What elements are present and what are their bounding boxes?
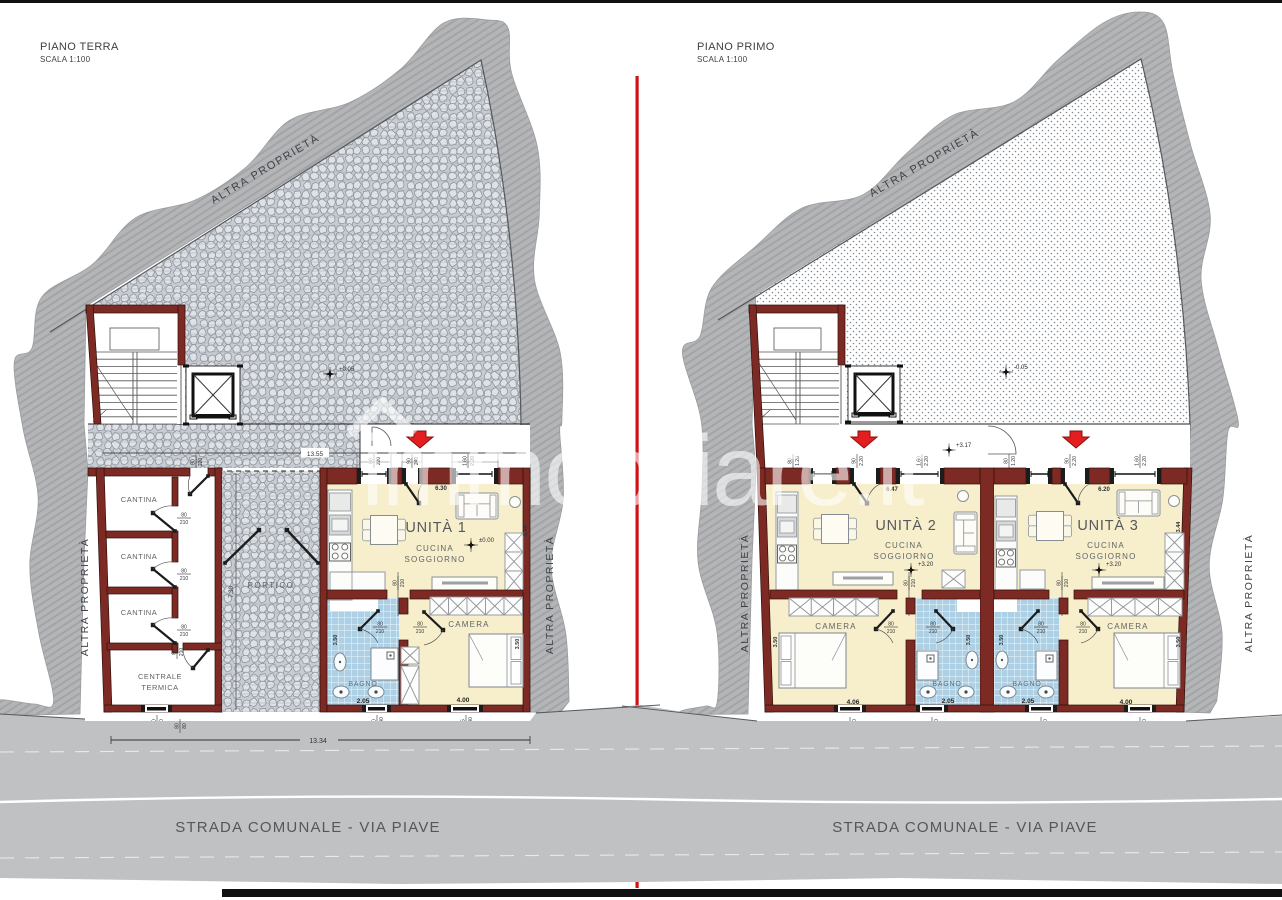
svg-text:210: 210 (180, 576, 189, 582)
svg-text:CUCINA: CUCINA (1087, 541, 1125, 550)
svg-text:CAMERA: CAMERA (815, 622, 856, 631)
svg-text:210: 210 (1037, 629, 1046, 635)
svg-text:80: 80 (1004, 458, 1010, 464)
svg-text:SCALA 1:100: SCALA 1:100 (697, 55, 748, 64)
svg-text:210: 210 (400, 579, 406, 588)
svg-text:CANTINA: CANTINA (121, 608, 157, 617)
svg-text:1.60: 1.60 (1135, 456, 1141, 466)
svg-text:2.20: 2.20 (924, 456, 930, 466)
svg-text:210: 210 (929, 629, 938, 635)
svg-text:PORTICO: PORTICO (248, 581, 295, 590)
svg-text:UNITÀ 3: UNITÀ 3 (1077, 517, 1138, 534)
svg-text:immobiliare.it: immobiliare.it (361, 415, 924, 527)
svg-text:3.50: 3.50 (333, 635, 339, 646)
svg-text:STRADA COMUNALE - VIA PIAVE: STRADA COMUNALE - VIA PIAVE (832, 819, 1098, 836)
svg-text:TERMICA: TERMICA (141, 683, 178, 692)
svg-text:+3.20: +3.20 (1106, 562, 1122, 568)
svg-text:CANTINA: CANTINA (121, 495, 157, 504)
svg-text:80: 80 (181, 513, 187, 519)
svg-text:2.05: 2.05 (357, 698, 370, 705)
svg-text:BAGNO: BAGNO (932, 681, 961, 688)
svg-text:1.20: 1.20 (1011, 456, 1017, 466)
svg-text:SOGGIORNO: SOGGIORNO (404, 555, 465, 564)
svg-text:80: 80 (1038, 622, 1044, 628)
svg-text:80: 80 (377, 622, 383, 628)
svg-text:4.00: 4.00 (457, 697, 470, 704)
svg-text:CAMERA: CAMERA (1107, 622, 1148, 631)
svg-text:210: 210 (376, 629, 385, 635)
svg-text:ALTRA PROPRIETÀ: ALTRA PROPRIETÀ (543, 536, 556, 655)
svg-text:210: 210 (1064, 579, 1070, 588)
svg-text:CENTRALE: CENTRALE (138, 672, 182, 681)
svg-text:80: 80 (930, 622, 936, 628)
svg-text:210: 210 (887, 629, 896, 635)
svg-text:+3.20: +3.20 (918, 562, 934, 568)
svg-text:210: 210 (180, 520, 189, 526)
svg-text:7.30: 7.30 (229, 586, 235, 598)
svg-text:80: 80 (181, 569, 187, 575)
svg-text:13.34: 13.34 (309, 738, 327, 745)
svg-text:90: 90 (1065, 458, 1071, 464)
svg-text:CAMERA: CAMERA (448, 620, 489, 629)
svg-text:80: 80 (393, 580, 399, 586)
svg-text:ALTRA PROPRIETÀ: ALTRA PROPRIETÀ (78, 538, 91, 657)
svg-text:80: 80 (1080, 622, 1086, 628)
svg-text:80: 80 (1057, 580, 1063, 586)
svg-text:3.50: 3.50 (966, 635, 972, 646)
svg-text:3.50: 3.50 (773, 637, 779, 648)
svg-text:±0.00: ±0.00 (479, 538, 495, 544)
svg-text:2.20: 2.20 (1142, 456, 1148, 466)
svg-text:210: 210 (911, 579, 917, 588)
svg-text:2.05: 2.05 (942, 698, 955, 705)
svg-text:6.20: 6.20 (1098, 487, 1110, 493)
svg-text:3.50: 3.50 (999, 635, 1005, 646)
svg-text:3.44: 3.44 (1176, 521, 1182, 533)
svg-text:210: 210 (1079, 629, 1088, 635)
svg-text:SCALA 1:100: SCALA 1:100 (40, 55, 91, 64)
svg-text:13.55: 13.55 (307, 451, 324, 458)
svg-text:210: 210 (179, 648, 185, 657)
svg-text:3.50: 3.50 (1176, 637, 1182, 648)
svg-text:2.05: 2.05 (1022, 698, 1035, 705)
svg-text:ALTRA PROPRIETÀ: ALTRA PROPRIETÀ (1242, 534, 1255, 653)
svg-text:2.20: 2.20 (1072, 456, 1078, 466)
svg-text:80: 80 (904, 580, 910, 586)
svg-text:BAGNO: BAGNO (1012, 681, 1041, 688)
svg-text:80: 80 (172, 649, 178, 655)
svg-text:PIANO TERRA: PIANO TERRA (40, 41, 119, 53)
svg-text:+3.17: +3.17 (956, 443, 972, 449)
svg-text:80: 80 (182, 723, 188, 729)
svg-text:BAGNO: BAGNO (348, 681, 377, 688)
svg-text:210: 210 (416, 629, 425, 635)
svg-text:CUCINA: CUCINA (416, 544, 454, 553)
svg-text:-0.05: -0.05 (1014, 365, 1028, 371)
svg-text:80: 80 (181, 625, 187, 631)
svg-text:SOGGIORNO: SOGGIORNO (873, 552, 934, 561)
svg-text:3.50: 3.50 (515, 639, 521, 650)
svg-text:CANTINA: CANTINA (121, 552, 157, 561)
svg-text:80: 80 (175, 723, 181, 729)
svg-text:+0.05: +0.05 (339, 367, 355, 373)
svg-text:80: 80 (417, 622, 423, 628)
svg-text:ALTRA PROPRIETÀ: ALTRA PROPRIETÀ (738, 534, 751, 653)
svg-text:210: 210 (180, 632, 189, 638)
svg-text:PIANO PRIMO: PIANO PRIMO (697, 41, 775, 53)
svg-text:SOGGIORNO: SOGGIORNO (1075, 552, 1136, 561)
svg-text:STRADA COMUNALE - VIA PIAVE: STRADA COMUNALE - VIA PIAVE (175, 819, 441, 836)
svg-text:CUCINA: CUCINA (885, 541, 923, 550)
svg-text:80: 80 (888, 622, 894, 628)
